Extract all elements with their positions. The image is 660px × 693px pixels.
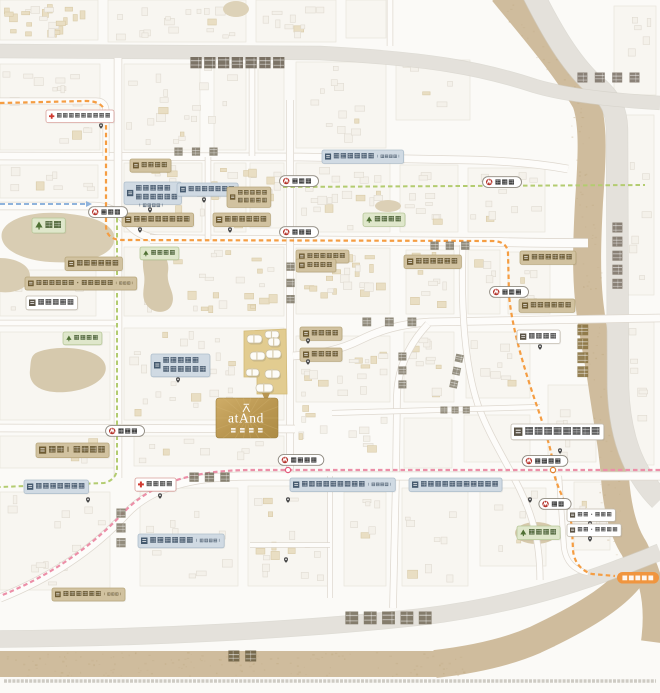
svg-text:atAnd: atAnd: [228, 411, 264, 426]
